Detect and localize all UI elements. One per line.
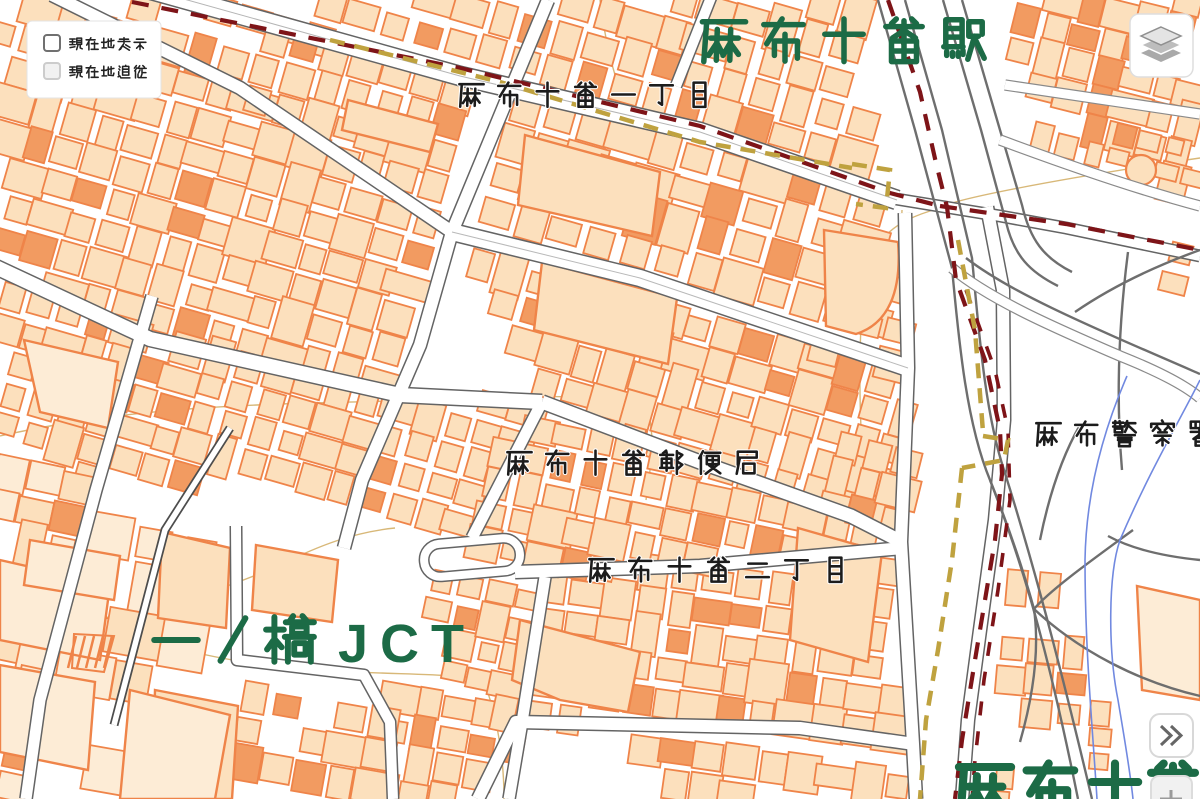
svg-text:JCT: JCT — [338, 614, 476, 674]
